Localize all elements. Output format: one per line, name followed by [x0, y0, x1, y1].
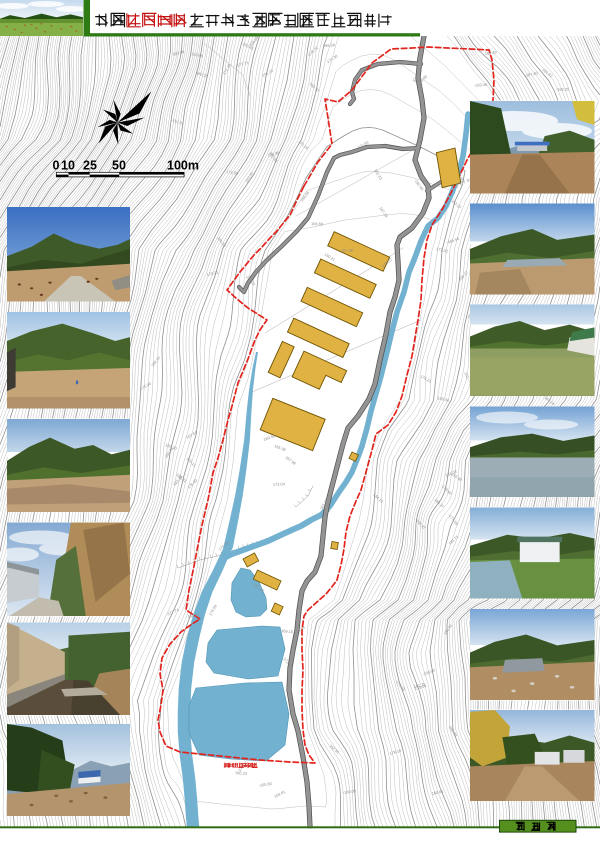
svg-text:166.38: 166.38 — [323, 42, 335, 48]
svg-text:10: 10 — [61, 159, 75, 173]
svg-text:157.39: 157.39 — [341, 248, 353, 253]
svg-text:50: 50 — [112, 159, 126, 173]
svg-text:100m: 100m — [167, 159, 199, 173]
svg-text:-182.25: -182.25 — [556, 87, 569, 92]
svg-text:172.04: 172.04 — [273, 481, 286, 487]
svg-text:0: 0 — [53, 159, 60, 173]
svg-text:156.68: 156.68 — [311, 221, 323, 226]
svg-text:25: 25 — [83, 159, 97, 173]
